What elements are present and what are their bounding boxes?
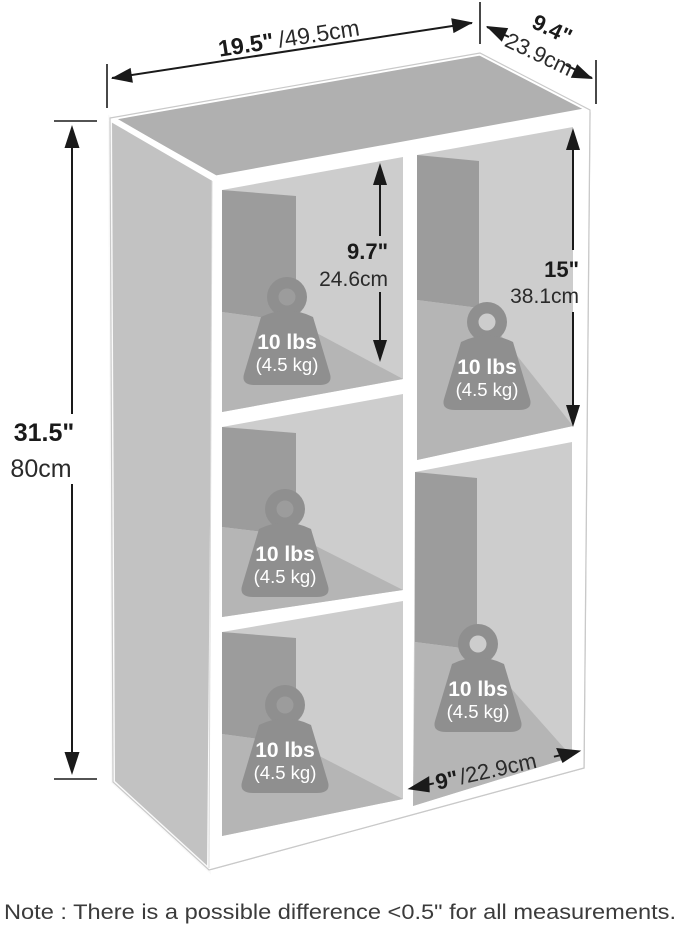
weight-kg-label: (4.5 kg) [447,701,510,722]
product-dimension-diagram: 10 lbs (4.5 kg) 10 lbs (4.5 kg) 10 lbs (… [0,0,679,928]
weight-handle-hole [279,289,296,306]
cubby-left-wall [417,155,479,308]
weight-kg-label: (4.5 kg) [254,762,317,783]
cubby-left-wall [415,472,477,650]
weight-kg-label: (4.5 kg) [254,566,317,587]
shelf-side-panel [110,118,215,870]
small-cubby-inches-label: 9.7" [347,239,388,264]
height-cm-label: 80cm [10,455,71,483]
weight-handle-hole [479,314,496,331]
weight-kg-label: (4.5 kg) [456,379,519,400]
weight-lbs-label: 10 lbs [255,739,315,762]
bookcase-diagram-canvas: 10 lbs (4.5 kg) 10 lbs (4.5 kg) 10 lbs (… [0,0,679,928]
height-inches-label: 31.5" [14,419,75,447]
width-dimension-label: 19.5"/49.5cm [216,14,361,61]
weight-lbs-label: 10 lbs [255,543,315,566]
weight-handle-hole [277,501,294,518]
weight-lbs-label: 10 lbs [257,331,317,354]
weight-handle-hole [277,697,294,714]
cubby-bottom-left [222,601,403,836]
height-dimension: 31.5" 80cm [10,121,97,779]
small-cubby-cm-label: 24.6cm [319,268,388,291]
weight-kg-label: (4.5 kg) [256,354,319,375]
weight-lbs-label: 10 lbs [448,678,508,701]
weight-lbs-label: 10 lbs [457,356,517,379]
weight-handle-hole [470,636,487,653]
large-cubby-cm-label: 38.1cm [510,285,579,308]
large-cubby-inches-label: 15" [544,257,579,282]
measurement-note: Note : There is a possible difference <0… [4,901,676,924]
bookcase-illustration: 10 lbs (4.5 kg) 10 lbs (4.5 kg) 10 lbs (… [110,53,590,870]
cubby-bottom-right [413,442,572,806]
